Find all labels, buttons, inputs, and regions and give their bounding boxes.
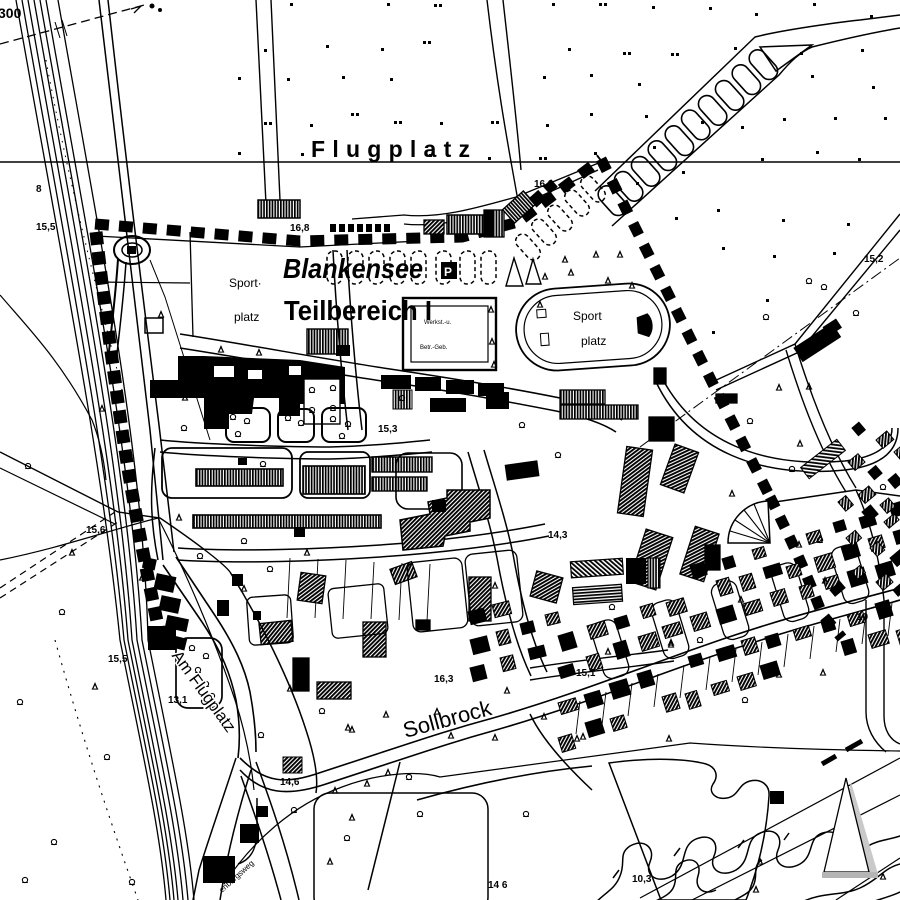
svg-text:16,2: 16,2 — [534, 179, 554, 190]
svg-text:Sport·: Sport· — [229, 276, 262, 290]
svg-text:Sport: Sport — [573, 309, 602, 323]
svg-text:16,8: 16,8 — [290, 223, 310, 234]
svg-text:Blankensee: Blankensee — [283, 253, 423, 284]
svg-text:15,5: 15,5 — [108, 654, 128, 665]
svg-text:15,2: 15,2 — [864, 254, 884, 265]
svg-text:Teilbereich I: Teilbereich I — [284, 295, 432, 326]
svg-text:14 6: 14 6 — [488, 880, 508, 891]
svg-text:Werkst.-u.: Werkst.-u. — [424, 320, 452, 326]
svg-text:8: 8 — [36, 184, 42, 195]
svg-text:10,3: 10,3 — [632, 874, 652, 885]
svg-text:15,6: 15,6 — [86, 525, 106, 536]
svg-text:15,3: 15,3 — [378, 424, 398, 435]
svg-text:Betr.-Geb.: Betr.-Geb. — [420, 345, 448, 351]
svg-text:15,5: 15,5 — [36, 222, 56, 233]
svg-text:16,3: 16,3 — [434, 674, 454, 685]
svg-text:Flugplatz: Flugplatz — [311, 136, 479, 162]
svg-text:15,1: 15,1 — [576, 668, 596, 679]
svg-text:P: P — [444, 265, 452, 279]
svg-text:14,6: 14,6 — [280, 777, 300, 788]
svg-text:14,3: 14,3 — [548, 530, 568, 541]
svg-text:10: 10 — [857, 612, 869, 623]
svg-text:platz: platz — [234, 310, 259, 324]
svg-text:platz: platz — [581, 334, 606, 348]
svg-text:13,1: 13,1 — [168, 695, 188, 706]
